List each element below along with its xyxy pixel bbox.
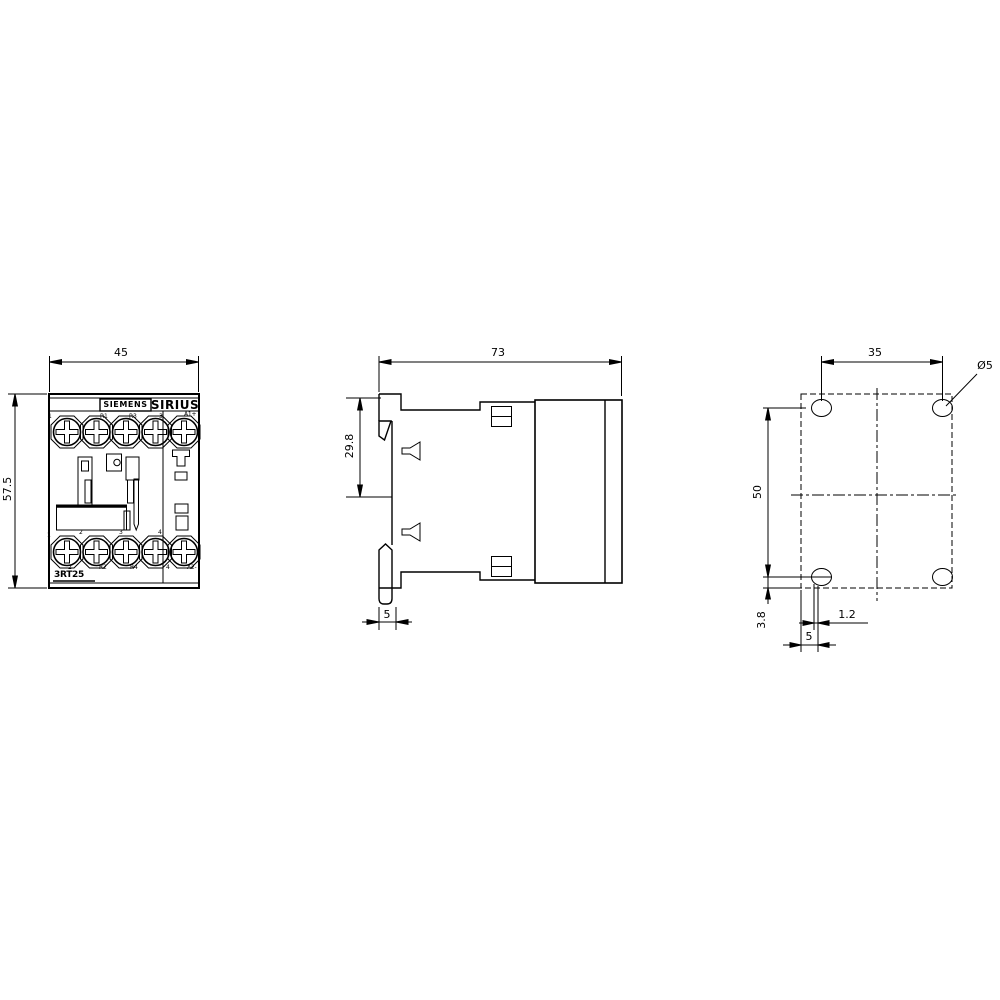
- pole-number: 4: [158, 530, 162, 536]
- hole-diameter-label: Ø5: [972, 360, 998, 371]
- terminal-label: R2: [99, 565, 107, 571]
- front-width-label: 45: [99, 347, 143, 358]
- screw-terminal-icon: [81, 416, 113, 448]
- release-lever-bottom: [402, 523, 420, 541]
- terminal-label: R1: [100, 414, 108, 420]
- terminal-label: 4: [166, 565, 170, 571]
- hook-offset-label: 1.2: [833, 609, 861, 620]
- terminal-label: R3: [129, 414, 137, 420]
- mounting-hole: [933, 569, 953, 586]
- terminal-label: A1+: [184, 412, 196, 418]
- screw-terminals: [51, 416, 200, 568]
- front-width-dimension: [50, 356, 199, 392]
- front-height-label: 57.5: [1, 467, 13, 511]
- hole-diameter-leader: [946, 374, 977, 406]
- bottom-edge-dimension: [763, 577, 801, 604]
- screw-terminal-icon: [110, 416, 142, 448]
- bottom-edge-label: 3.8: [755, 598, 767, 642]
- pole-number: 1: [47, 533, 51, 539]
- terminal-label: R4: [130, 565, 138, 571]
- pole-number: 3: [119, 530, 123, 536]
- screw-terminal-icon: [51, 536, 83, 568]
- screw-terminal-icon: [81, 536, 113, 568]
- screw-terminal-icon: [51, 416, 83, 448]
- screw-terminal-icon: [140, 416, 172, 448]
- side-profile: [346, 394, 622, 604]
- drill-plan-linework: [763, 356, 977, 652]
- model-label: 3RT25: [54, 571, 84, 580]
- front-mechanism-details: [57, 450, 190, 530]
- side-view-linework: [346, 356, 622, 630]
- rail-seat-label: 29.8: [343, 424, 355, 468]
- release-lever-top: [402, 442, 420, 460]
- pole-number: 2: [79, 530, 83, 536]
- hole-spacing-v-label: 50: [751, 470, 763, 514]
- dimension-drawing-canvas: 45 57.5 SIEMENS SIRIUS 3RT25 1 R1 R3 3 A…: [0, 0, 1000, 1000]
- coil-housing-block: [535, 400, 622, 583]
- side-depth-dimension: [379, 356, 622, 396]
- mounting-hole: [812, 400, 832, 417]
- terminal-label: 2: [68, 565, 72, 571]
- terminal-label: A2-: [187, 565, 197, 571]
- din-claw-top: [379, 421, 391, 440]
- siemens-logo: SIEMENS: [100, 399, 151, 411]
- terminal-label: 1: [48, 414, 52, 420]
- terminal-label: 3: [159, 414, 163, 420]
- hole-spacing-h-label: 35: [853, 347, 897, 358]
- hole-spacing-v-dimension: [763, 408, 832, 577]
- drawing-linework: [0, 0, 1000, 1000]
- claw-width-label: 5: [377, 609, 397, 620]
- side-depth-label: 73: [476, 347, 520, 358]
- front-height-dimension: [8, 394, 47, 588]
- rail-hook-label: 5: [799, 631, 819, 642]
- front-view-linework: [8, 356, 200, 588]
- sirius-label: SIRIUS: [151, 398, 199, 411]
- din-claw-bottom: [379, 544, 392, 604]
- screw-terminal-icon: [168, 416, 200, 448]
